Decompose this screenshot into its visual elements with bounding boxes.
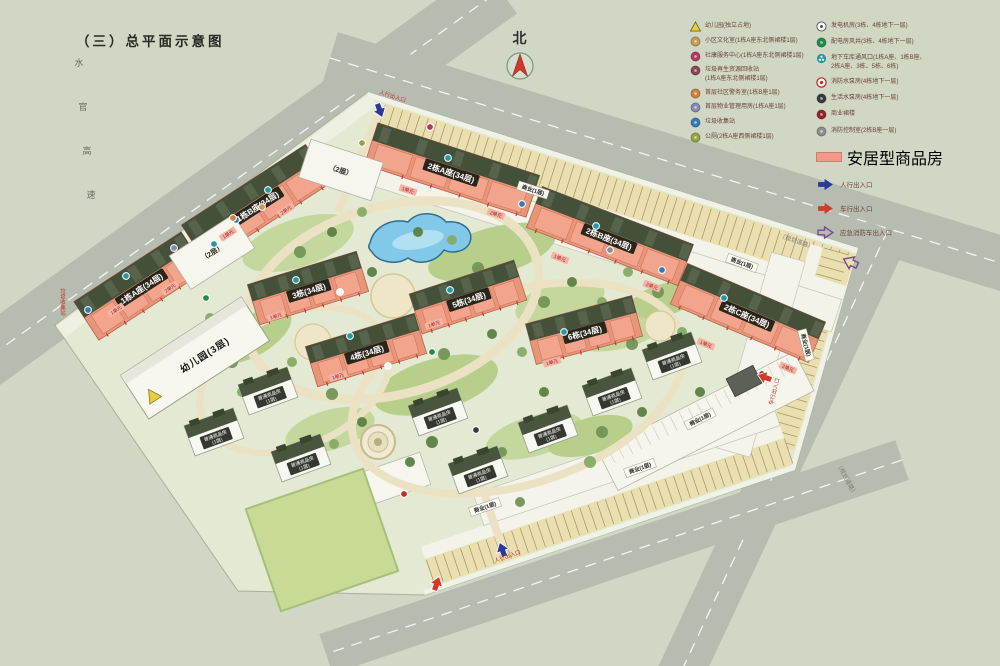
- garage-vent-icon: [721, 295, 728, 302]
- central-plaza: [371, 274, 415, 318]
- legend-item-public-toilet: 公厕(2栋A座西侧裙楼1层): [690, 133, 804, 143]
- legend-label: 垃圾再生资源回收站: [705, 67, 759, 73]
- culture-room-icon: [690, 36, 701, 47]
- garage-vent-icon: [593, 223, 600, 230]
- garage-vent-icon: [211, 241, 218, 248]
- tree: [329, 439, 339, 449]
- health-center-icon: [690, 51, 701, 62]
- garbage-collection-icon: [519, 201, 526, 208]
- legend-label: 车行出入口: [840, 203, 873, 213]
- public-toilet-icon: [359, 140, 366, 147]
- legend-label: 幼儿园(独立占地): [705, 23, 751, 29]
- legend-label: 地下车库通风口(1栋A座、1栋B座、: [831, 55, 926, 61]
- recycling-station-icon: [690, 65, 701, 76]
- legend-item-emergency-fire-entrance: 应急消防车出入口: [816, 226, 943, 239]
- garage-vent-icon: [123, 273, 130, 280]
- tree: [287, 357, 297, 367]
- legend-item-water-pump-room: 生活水泵房(4栋地下一层): [816, 94, 943, 104]
- legend-label: 人行出入口: [840, 179, 873, 189]
- legend-item-fire-pump-room: 消防水泵房(4栋地下一层): [816, 78, 943, 88]
- site-plan-page: 1栋A座(34层)1栋B座(34层)2栋A座(34层)2栋B座(34层)2栋C座…: [0, 0, 1000, 666]
- legend-label: 消防控制室(2栋B座一层): [831, 128, 896, 134]
- garbage-collection-icon: [659, 267, 666, 274]
- garage-vent-icon: [816, 53, 827, 64]
- kindergarten-icon: [690, 21, 701, 32]
- generator-room-icon: [816, 21, 827, 32]
- tree: [447, 235, 457, 245]
- legend-label: 社康服务中心(1栋A座东北侧裙楼1层): [705, 53, 804, 59]
- fire-pump-room-icon: [401, 491, 408, 498]
- page-title: （三）总平面示意图: [76, 30, 225, 50]
- legend-label: 消防水泵房(4栋地下一层): [831, 79, 898, 85]
- police-room-icon: [690, 88, 701, 99]
- tree: [695, 387, 705, 397]
- vehicle-entrance-icon: [816, 202, 835, 215]
- legend-item-police-room: 首层社区警务室(1栋B座1层): [690, 89, 804, 99]
- tree: [515, 497, 525, 507]
- north-indicator: 北: [500, 28, 540, 87]
- tree: [596, 426, 608, 438]
- tree: [637, 407, 647, 417]
- commercial-podium-icon: [816, 109, 827, 120]
- garbage-collection-icon: [85, 307, 92, 314]
- legend-label: 首层物业管理用房(1栋A座1层): [705, 104, 786, 110]
- legend-label: 首层社区警务室(1栋B座1层): [705, 90, 780, 96]
- tree: [623, 267, 633, 277]
- garage-vent-icon: [561, 329, 568, 336]
- tree: [357, 207, 367, 217]
- legend-item-garbage-collection: 垃圾收集站: [690, 118, 804, 128]
- legend-item-recycling-station: 垃圾再生资源回收站(1栋A座东北侧裙楼1层): [690, 66, 804, 83]
- tree: [567, 277, 577, 287]
- garbage-collection-icon: [690, 117, 701, 128]
- tree: [426, 436, 438, 448]
- police-room-icon: [230, 215, 237, 222]
- tree: [405, 457, 415, 467]
- water-pump-room-icon: [473, 427, 480, 434]
- fire-control-room-icon: [816, 126, 827, 137]
- legend-item-power-distribution: 配电房风井(3栋、4栋地下一层): [816, 38, 943, 48]
- tree: [357, 417, 367, 427]
- tree: [487, 329, 497, 339]
- legend-item-fire-control-room: 消防控制室(2栋B座一层): [816, 127, 943, 137]
- power-distribution-icon: [816, 37, 827, 48]
- tree: [367, 267, 377, 277]
- public-toilet-icon: [690, 132, 701, 143]
- legend-label-line2: (1栋A座东北侧裙楼1层): [705, 76, 768, 82]
- fire-pump-room-icon: [816, 77, 827, 88]
- affordable-housing-swatch: [816, 152, 842, 162]
- road-name-char: 官: [78, 101, 87, 112]
- legend-label-line2: 2栋A座、3栋、5栋、6栋): [831, 64, 898, 70]
- tree: [539, 387, 549, 397]
- legend-item-culture-room: 小区文化室(1栋A座东北侧裙楼1层): [690, 37, 804, 47]
- legend-label: 公厕(2栋A座西侧裙楼1层): [705, 134, 774, 140]
- legend-label: 安居型商品房: [847, 145, 943, 169]
- property-mgmt-icon: [690, 102, 701, 113]
- legend-label: 生活水泵房(4栋地下一层): [831, 95, 898, 101]
- north-label: 北: [500, 28, 540, 48]
- generator-room-icon: [385, 363, 392, 370]
- legend-item-generator-room: 发电机房(3栋、4栋地下一层): [816, 22, 943, 32]
- svg-text:垃圾收集站: 垃圾收集站: [59, 287, 66, 317]
- legend-label: 配电房风井(3栋、4栋地下一层): [831, 39, 914, 45]
- legend-label: 小区文化室(1栋A座东北侧裙楼1层): [705, 38, 798, 44]
- legend-label: 垃圾收集站: [705, 119, 735, 125]
- road-name-char: 高: [82, 145, 91, 156]
- tree: [413, 227, 423, 237]
- garage-vent-icon: [447, 287, 454, 294]
- legend-item-commercial-podium: 商业裙楼: [816, 110, 943, 120]
- property-mgmt-icon: [171, 245, 178, 252]
- tree: [517, 347, 527, 357]
- legend-item-kindergarten: 幼儿园(独立占地): [690, 22, 804, 32]
- power-distribution-icon: [203, 295, 210, 302]
- water-pump-room-icon: [816, 93, 827, 104]
- legend-item-affordable-housing: 安居型商品房: [816, 145, 943, 169]
- tree: [326, 388, 338, 400]
- legend-item-vehicle-entrance: 车行出入口: [816, 202, 943, 215]
- garage-vent-icon: [293, 277, 300, 284]
- tree: [294, 246, 306, 258]
- generator-room-icon: [337, 289, 344, 296]
- culture-room-icon: [259, 204, 266, 211]
- legend-item-pedestrian-entrance: 人行出入口: [816, 178, 943, 191]
- health-center-icon: [427, 124, 434, 131]
- garage-vent-icon: [445, 155, 452, 162]
- garbage-station-label: 垃圾收集站: [59, 287, 66, 317]
- road-name-char: 水: [74, 57, 83, 68]
- compass-icon: [503, 48, 537, 82]
- tree: [327, 227, 337, 237]
- legend-column-1: 幼儿园(独立占地)小区文化室(1栋A座东北侧裙楼1层)社康服务中心(1栋A座东北…: [690, 22, 804, 148]
- legend-column-2: 发电机房(3栋、4栋地下一层)配电房风井(3栋、4栋地下一层)地下车库通风口(1…: [816, 22, 943, 250]
- garage-vent-icon: [265, 187, 272, 194]
- tree: [438, 348, 450, 360]
- fire-control-room-icon: [607, 247, 614, 254]
- tree: [538, 296, 550, 308]
- garage-vent-icon: [347, 333, 354, 340]
- legend-item-property-mgmt: 首层物业管理用房(1栋A座1层): [690, 103, 804, 113]
- tree: [584, 456, 596, 468]
- legend-item-garage-vent: 地下车库通风口(1栋A座、1栋B座、2栋A座、3栋、5栋、6栋): [816, 54, 943, 71]
- legend-label: 商业裙楼: [831, 111, 855, 117]
- pedestrian-entrance-icon: [816, 178, 835, 191]
- legend-item-health-center: 社康服务中心(1栋A座东北侧裙楼1层): [690, 52, 804, 62]
- emergency-fire-entrance-icon: [816, 226, 835, 239]
- legend-label: 发电机房(3栋、4栋地下一层): [831, 23, 908, 29]
- power-distribution-icon: [429, 349, 436, 356]
- road-name-char: 速: [86, 190, 95, 200]
- legend-label: 应急消防车出入口: [840, 227, 892, 237]
